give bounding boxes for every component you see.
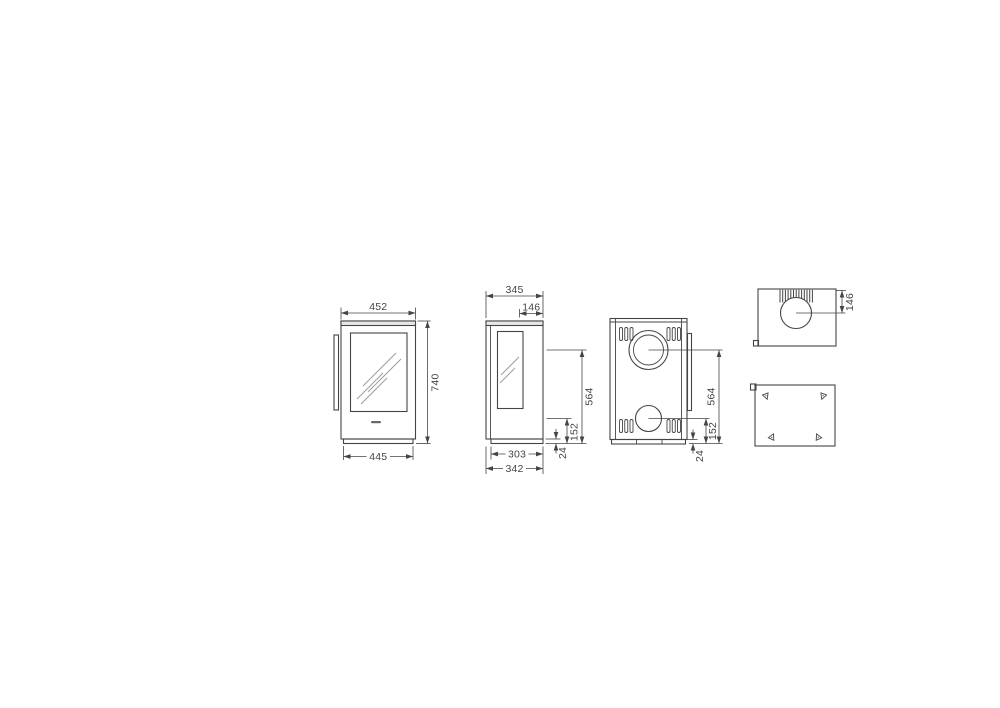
stove-dimensional-drawing: 452 740 445 345 bbox=[0, 0, 1000, 708]
adjustable-foot-bottom-left bbox=[768, 433, 776, 441]
front-view: 452 740 445 bbox=[334, 301, 442, 463]
brand-mark bbox=[371, 421, 381, 423]
door-handle bbox=[334, 335, 339, 410]
top-plate-side bbox=[486, 321, 543, 326]
top-view: 146 bbox=[754, 289, 857, 346]
top-plate bbox=[341, 321, 416, 326]
base-plinth-side bbox=[491, 439, 543, 444]
glass-door bbox=[351, 333, 408, 412]
dim-label: 24 bbox=[694, 450, 706, 462]
dim-side-plinth-height: 24 bbox=[546, 429, 570, 459]
base-plinth-back bbox=[612, 440, 686, 445]
side-glass-window bbox=[498, 332, 524, 409]
adjustable-foot-bottom-right bbox=[814, 433, 822, 441]
vent-slots-bottom-right bbox=[667, 420, 681, 433]
dim-label: 152 bbox=[707, 422, 719, 440]
dim-label: 342 bbox=[505, 463, 523, 475]
adjustable-foot-top-left bbox=[762, 393, 770, 400]
dim-label: 146 bbox=[844, 293, 856, 311]
glass-reflection-lines bbox=[500, 357, 519, 383]
vent-slots-bottom-left bbox=[620, 420, 634, 433]
bottom-view bbox=[751, 384, 836, 446]
base-plinth-front bbox=[344, 439, 414, 444]
dim-back-plinth-height: 24 bbox=[687, 430, 706, 463]
dim-label: 564 bbox=[706, 387, 718, 405]
stove-body-side bbox=[486, 321, 543, 439]
vent-slots-top-left bbox=[620, 328, 634, 341]
dim-front-width-base: 445 bbox=[344, 446, 414, 463]
dim-label: 152 bbox=[569, 423, 581, 441]
dim-front-height: 740 bbox=[416, 321, 442, 444]
dim-side-plinth-depth: 303 bbox=[491, 447, 543, 461]
side-view: 345 146 564 152 24 303 bbox=[486, 284, 596, 475]
dim-front-width-top: 452 bbox=[341, 301, 416, 320]
door-handle-back bbox=[688, 334, 692, 411]
dim-side-rear-flue-height: 152 bbox=[547, 419, 581, 444]
dim-label: 445 bbox=[369, 451, 387, 463]
dim-label: 24 bbox=[557, 447, 569, 459]
dim-label: 740 bbox=[430, 373, 442, 391]
dim-label: 345 bbox=[505, 284, 523, 296]
dim-side-flue-offset: 146 bbox=[520, 302, 544, 318]
vent-slots-top-right bbox=[667, 328, 681, 341]
dim-label: 564 bbox=[584, 387, 596, 405]
dim-label: 452 bbox=[369, 301, 387, 313]
glass-reflection-lines bbox=[357, 353, 401, 404]
adjustable-foot-top-right bbox=[819, 393, 827, 400]
back-view: 564 152 24 bbox=[610, 319, 723, 463]
dim-label: 303 bbox=[508, 449, 526, 461]
dim-label: 146 bbox=[522, 302, 540, 314]
base-outline-bottom-view bbox=[755, 385, 835, 446]
